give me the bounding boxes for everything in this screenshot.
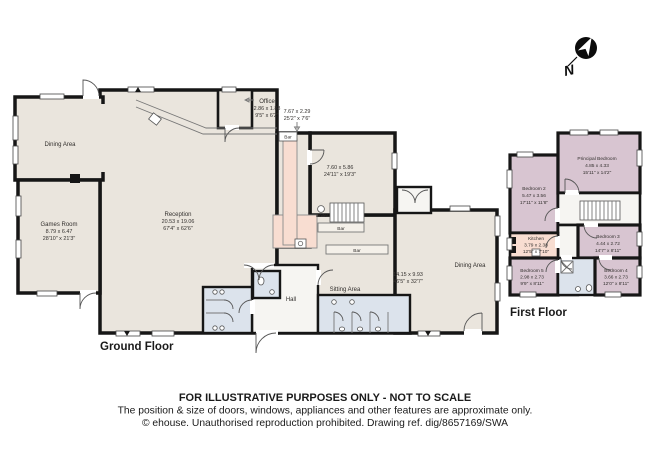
urinal-icon bbox=[213, 290, 217, 294]
sink-icon bbox=[270, 290, 275, 295]
function-room-metric: 14.15 x 9.93 bbox=[393, 272, 423, 278]
kitchen-metric: 3.79 x 2.38 bbox=[524, 243, 548, 249]
window bbox=[507, 238, 512, 250]
door-gap bbox=[555, 260, 560, 273]
urinal-icon bbox=[220, 290, 224, 294]
toilet-icon bbox=[339, 327, 344, 331]
bedroom-5-label: Bedroom 5 bbox=[520, 268, 544, 274]
window bbox=[495, 283, 500, 301]
kitchen-imperial: 12'5" x 7'10" bbox=[523, 249, 550, 255]
bedroom-4-label: Bedroom 4 bbox=[604, 268, 628, 274]
ground-floor-title: Ground Floor bbox=[100, 341, 174, 353]
sitting-area-label: Sitting Area bbox=[330, 287, 361, 293]
principal-bedroom-label: Principal Bedroom bbox=[577, 156, 616, 162]
office-label: Office bbox=[259, 99, 275, 105]
north-label: N bbox=[562, 61, 576, 79]
games-room-metric: 8.79 x 6.47 bbox=[46, 229, 73, 235]
lounge-imperial: 24'11" x 19'3" bbox=[324, 172, 356, 178]
window bbox=[520, 292, 536, 297]
door-gap bbox=[464, 329, 482, 335]
window bbox=[222, 87, 236, 92]
boiler-icon bbox=[318, 206, 325, 213]
hall-label: Hall bbox=[286, 297, 296, 303]
wc-cubicle bbox=[253, 271, 280, 298]
function-room-imperial: 46'5" x 32'7" bbox=[393, 279, 423, 285]
boiler-label: Boiler bbox=[316, 213, 329, 219]
bedroom-3-imperial: 14'7" x 8'11" bbox=[595, 248, 621, 254]
window bbox=[13, 116, 18, 140]
principal-bedroom-metric: 4.85 x 4.33 bbox=[585, 163, 609, 169]
sink-icon bbox=[350, 300, 355, 305]
sink-icon bbox=[332, 300, 337, 305]
lounge-metric: 7.60 x 5.86 bbox=[327, 165, 354, 171]
bedroom-2-label: Bedroom 2 bbox=[522, 186, 546, 192]
door-gap bbox=[83, 93, 99, 99]
door-gap bbox=[250, 300, 255, 314]
bar-counter-upper-label: Bar bbox=[337, 226, 345, 232]
window bbox=[13, 146, 18, 164]
urinal-icon bbox=[220, 326, 224, 330]
reception-metric: 20.53 x 19.06 bbox=[162, 219, 195, 225]
bedroom-3-metric: 4.44 x 2.72 bbox=[596, 241, 620, 247]
window bbox=[37, 291, 57, 296]
bar-strip bbox=[283, 139, 297, 245]
toilet-icon bbox=[375, 327, 380, 331]
bar-leader-arrow bbox=[295, 122, 300, 131]
bedroom-5-metric: 2.98 x 2.73 bbox=[520, 275, 544, 281]
floorplan-page: Dining Area Games Room 8.79 x 6.47 28'10… bbox=[0, 0, 650, 459]
window bbox=[16, 240, 21, 258]
principal-bedroom-imperial: 15'11" x 14'2" bbox=[583, 170, 612, 176]
bar-imperial: 25'2" x 7'6" bbox=[284, 116, 311, 122]
toilet-icon bbox=[357, 327, 362, 331]
door-gap bbox=[561, 255, 572, 260]
dining-left-label: Dining Area bbox=[44, 142, 76, 148]
door-gap bbox=[555, 208, 560, 222]
wall-pier bbox=[70, 174, 80, 183]
bar-metric: 7.67 x 2.29 bbox=[284, 109, 311, 115]
bedroom-2-metric: 5.47 x 3.56 bbox=[522, 193, 546, 199]
window bbox=[495, 216, 500, 236]
staircase-ground-icon bbox=[330, 203, 364, 222]
room-dining-area-left bbox=[15, 97, 103, 180]
window bbox=[605, 292, 621, 297]
reception-label: Reception bbox=[164, 212, 191, 218]
bedroom-3-label: Bedroom 3 bbox=[596, 234, 620, 240]
door-gap bbox=[584, 222, 598, 227]
toilets-left bbox=[203, 287, 252, 333]
footer-line-3: © ehouse. Unauthorised reproduction proh… bbox=[142, 418, 508, 429]
bedroom-4-metric: 3.66 x 2.73 bbox=[604, 275, 628, 281]
window bbox=[450, 206, 470, 211]
urinal-icon bbox=[213, 326, 217, 330]
kitchen-label: Kitchen bbox=[528, 236, 544, 242]
window bbox=[392, 153, 397, 169]
office-imperial: 9'5" x 6'2" bbox=[255, 113, 279, 119]
window bbox=[128, 87, 154, 92]
footer-line-1: FOR ILLUSTRATIVE PURPOSES ONLY - NOT TO … bbox=[179, 392, 471, 404]
bedroom-4-imperial: 12'0" x 8'11" bbox=[603, 281, 629, 287]
footer-line-2: The position & size of doors, windows, a… bbox=[118, 406, 533, 417]
games-room-label: Games Room bbox=[40, 222, 77, 228]
first-floor-title: First Floor bbox=[510, 307, 567, 319]
bar-name-label: Bar bbox=[284, 135, 292, 141]
window bbox=[517, 152, 533, 157]
window bbox=[16, 196, 21, 216]
window bbox=[637, 232, 642, 246]
bedroom-2-imperial: 17'11" x 11'8" bbox=[520, 200, 549, 206]
window bbox=[152, 331, 174, 336]
door-gap bbox=[565, 190, 579, 195]
door-gap bbox=[225, 125, 239, 130]
window bbox=[637, 266, 642, 278]
reception-imperial: 67'4" x 62'6" bbox=[163, 226, 193, 232]
window bbox=[507, 266, 512, 280]
window bbox=[507, 170, 512, 188]
window bbox=[637, 150, 642, 166]
ground-floor-plan: Dining Area Games Room 8.79 x 6.47 28'10… bbox=[13, 80, 500, 353]
north-compass-icon: N bbox=[562, 35, 597, 79]
office-metric: 2.86 x 1.88 bbox=[254, 106, 281, 112]
sink-icon bbox=[576, 287, 581, 292]
footer-disclaimer: FOR ILLUSTRATIVE PURPOSES ONLY - NOT TO … bbox=[118, 392, 533, 429]
entrance-vestibule bbox=[397, 187, 431, 213]
room-office bbox=[218, 90, 252, 128]
games-room-imperial: 28'10" x 21'3" bbox=[43, 236, 76, 242]
staircase-first-icon bbox=[580, 201, 620, 220]
window bbox=[600, 130, 618, 135]
door-gap bbox=[555, 236, 560, 248]
sink-icon bbox=[295, 239, 306, 248]
door-gap bbox=[599, 255, 612, 260]
open-plan-gap bbox=[97, 104, 106, 172]
floorplan-drawing: Dining Area Games Room 8.79 x 6.47 28'10… bbox=[0, 0, 650, 459]
window bbox=[570, 130, 588, 135]
toilet-icon bbox=[586, 285, 592, 292]
first-floor-plan: Principal Bedroom 4.85 x 4.33 15'11" x 1… bbox=[507, 130, 642, 319]
door-gap bbox=[307, 150, 312, 165]
room-principal-bedroom bbox=[558, 133, 640, 193]
bar-counter-lower-label: Bar bbox=[353, 248, 361, 254]
window bbox=[40, 94, 64, 99]
bedroom-5-imperial: 9'9" x 8'11" bbox=[520, 281, 544, 287]
dining-right-label: Dining Area bbox=[454, 263, 486, 269]
